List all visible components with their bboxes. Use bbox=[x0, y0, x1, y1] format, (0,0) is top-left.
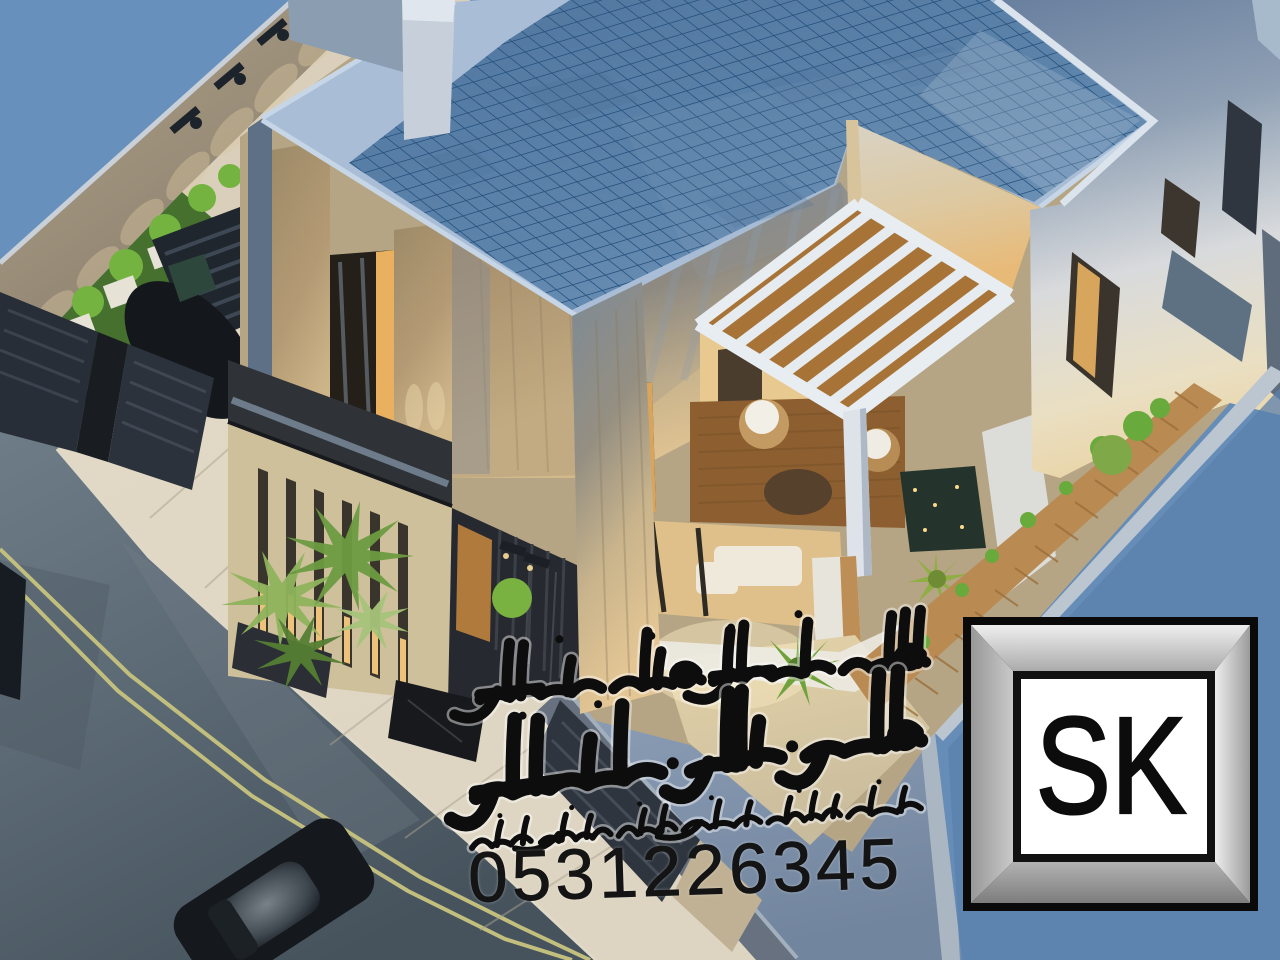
svg-text:SK: SK bbox=[1036, 688, 1187, 842]
